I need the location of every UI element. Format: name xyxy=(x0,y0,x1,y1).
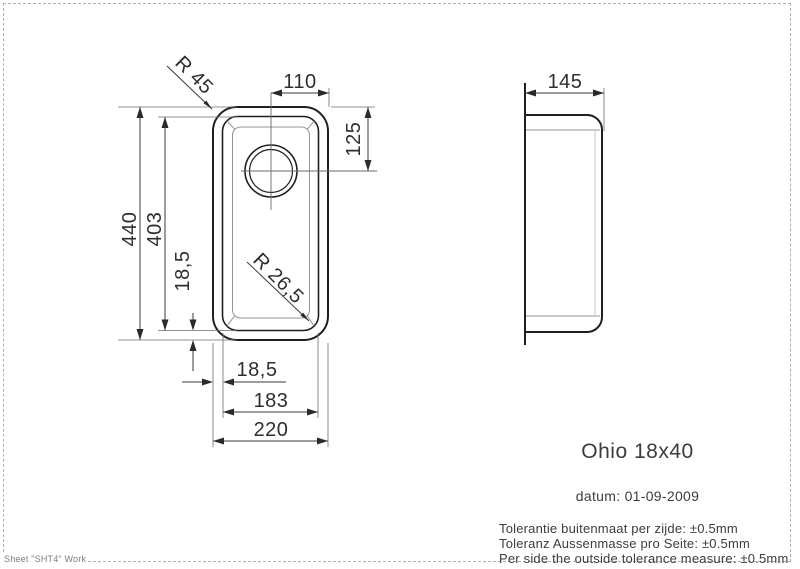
dim-label-440: 440 xyxy=(119,212,141,247)
dim-label-145: 145 xyxy=(548,71,583,93)
side-view-bowl-outline xyxy=(525,115,602,332)
dim-label-18-5-vertical: 18,5 xyxy=(172,251,194,292)
dim-183: 183 xyxy=(223,390,318,416)
dim-145: 145 xyxy=(525,71,604,97)
side-view: 145 xyxy=(525,71,604,345)
dim-label-403: 403 xyxy=(144,212,166,247)
top-view-outer-outline xyxy=(213,107,328,340)
dim-220: 220 xyxy=(213,419,328,445)
title-block: Ohio 18x40 datum: 01-09-2009 Tolerantie … xyxy=(499,440,794,566)
dim-110: 110 xyxy=(271,71,329,97)
sheet-name-label: Sheet "SHT4" Work xyxy=(2,554,88,564)
dim-label-125: 125 xyxy=(343,122,365,157)
dim-label-110: 110 xyxy=(283,71,316,93)
dim-125: 125 xyxy=(343,107,372,171)
model-name: Ohio 18x40 xyxy=(499,440,776,464)
dim-18-5-horizontal: 18,5 xyxy=(182,359,286,386)
side-view-inner-lines xyxy=(526,130,600,316)
dim-label-18-5-horizontal: 18,5 xyxy=(237,359,278,381)
dim-18-5-vertical: 18,5 xyxy=(172,251,197,371)
dim-440: 440 xyxy=(119,107,144,340)
tolerance-line-nl: Tolerantie buitenmaat per zijde: ±0.5mm xyxy=(499,521,794,536)
radius-callout-r26-5: R 26,5 xyxy=(247,249,309,321)
dim-label-183: 183 xyxy=(254,390,289,412)
tolerance-line-de: Toleranz Aussenmasse pro Seite: ±0.5mm xyxy=(499,536,794,551)
drawing-sheet: 110 125 440 403 18,5 xyxy=(0,0,800,569)
dim-label-r26-5: R 26,5 xyxy=(248,249,307,308)
tolerance-notes: Tolerantie buitenmaat per zijde: ±0.5mm … xyxy=(499,521,794,566)
date-line: datum: 01-09-2009 xyxy=(499,488,776,504)
top-view-bowl-rim-outline xyxy=(223,117,319,331)
tolerance-line-en: Per side the outside tolerance measure: … xyxy=(499,551,794,566)
dim-403: 403 xyxy=(144,117,169,331)
radius-callout-r45: R 45 xyxy=(167,52,217,109)
dim-label-220: 220 xyxy=(254,419,289,441)
